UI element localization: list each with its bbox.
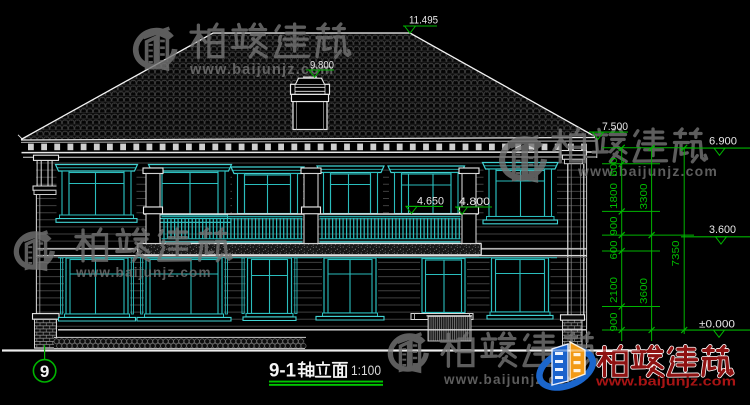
svg-text:3300: 3300 xyxy=(638,183,650,209)
svg-text:600: 600 xyxy=(608,240,620,259)
svg-text:9-1: 9-1 xyxy=(269,360,296,382)
svg-text:www.baijunjz.com: www.baijunjz.com xyxy=(595,374,736,389)
svg-text:900: 900 xyxy=(608,216,620,235)
svg-text:6.900: 6.900 xyxy=(709,136,737,148)
svg-text:7350: 7350 xyxy=(670,240,682,266)
svg-text:1800: 1800 xyxy=(608,183,620,209)
svg-text:1:100: 1:100 xyxy=(351,362,381,378)
svg-text:±0.000: ±0.000 xyxy=(699,318,735,330)
svg-text:9: 9 xyxy=(40,362,49,381)
svg-text:2100: 2100 xyxy=(608,277,620,303)
svg-text:3.600: 3.600 xyxy=(709,224,736,236)
svg-text:4.650: 4.650 xyxy=(417,195,444,207)
svg-text:4.800: 4.800 xyxy=(459,196,490,208)
svg-text:www.baijunjz.com: www.baijunjz.com xyxy=(577,163,718,179)
svg-text:7.500: 7.500 xyxy=(602,121,628,133)
svg-text:3600: 3600 xyxy=(638,278,650,304)
svg-text:900: 900 xyxy=(608,312,620,331)
svg-text:11.495: 11.495 xyxy=(409,15,438,27)
svg-text:600: 600 xyxy=(608,157,620,176)
svg-text:www.baijunjz.com: www.baijunjz.com xyxy=(75,265,212,280)
